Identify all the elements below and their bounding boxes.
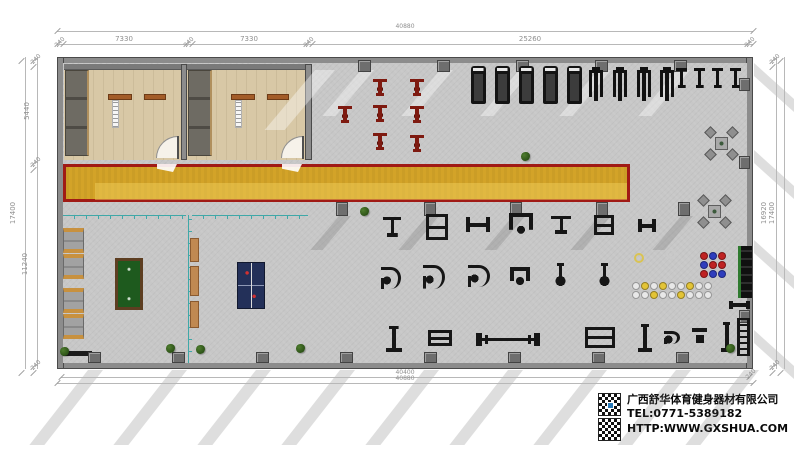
exercise-ball-icon xyxy=(695,291,703,299)
column-bottom xyxy=(508,352,521,363)
exterior-shadow xyxy=(113,370,187,445)
exercise-ball-icon xyxy=(668,282,676,290)
chair-icon xyxy=(692,328,707,346)
ped-icon xyxy=(553,263,568,287)
frame-icon xyxy=(428,330,452,346)
lat-icon xyxy=(383,217,401,237)
bike-icon xyxy=(676,68,687,88)
tower-icon xyxy=(509,213,533,237)
sofa xyxy=(63,254,84,279)
door-leaf xyxy=(177,136,179,159)
sofa xyxy=(63,228,84,253)
spin-icon xyxy=(373,133,387,150)
post-icon xyxy=(638,324,652,352)
dimension-label: 240 xyxy=(29,53,42,66)
treadmill-icon xyxy=(519,66,534,104)
bike-icon xyxy=(730,68,741,88)
sofa xyxy=(63,314,84,339)
sofa xyxy=(63,288,84,313)
bench xyxy=(190,238,199,262)
bench xyxy=(190,266,199,296)
dimension-label: 5440 xyxy=(23,102,31,120)
exterior-shadow xyxy=(449,370,523,445)
ball-ring-icon xyxy=(634,253,644,263)
dimension-label: 25260 xyxy=(519,35,541,43)
treadmill-icon xyxy=(567,66,582,104)
dimension-line xyxy=(57,31,753,32)
exercise-ball-icon xyxy=(650,291,658,299)
elliptical-icon xyxy=(589,67,603,101)
dimension-label: 40880 xyxy=(395,23,414,30)
exercise-ball-icon xyxy=(632,291,640,299)
curl-icon xyxy=(664,331,680,344)
exterior-shadow xyxy=(197,370,271,445)
room-label-strip xyxy=(235,100,242,128)
column-bottom xyxy=(592,352,605,363)
bench-icon xyxy=(729,301,750,309)
locker-cabinet xyxy=(188,70,212,156)
dimension-line xyxy=(776,57,777,369)
column-bottom xyxy=(88,352,101,363)
column-bottom xyxy=(340,352,353,363)
elliptical-icon xyxy=(637,67,651,101)
dimension-label: 40880 xyxy=(395,375,414,382)
wall-bottom xyxy=(57,362,753,369)
dimension-line xyxy=(57,383,753,384)
spin-icon xyxy=(373,105,387,122)
bench-icon xyxy=(466,217,490,232)
table-with-chairs xyxy=(706,128,738,160)
chair-icon xyxy=(719,216,732,229)
column-track xyxy=(678,202,690,216)
gym-floor-plan: 广西舒华体育健身器材有限公司 TEL:0771-5389182 HTTP:WWW… xyxy=(0,0,800,450)
spin-icon xyxy=(373,79,387,96)
medicine-ball-icon xyxy=(700,270,708,278)
chair-icon xyxy=(726,148,739,161)
medicine-ball-icon xyxy=(709,252,717,260)
medicine-ball-icon xyxy=(709,261,717,269)
dimension-label: 17400 xyxy=(768,202,776,224)
dimension-label: 240 xyxy=(29,359,42,372)
curl-icon xyxy=(423,265,445,289)
exercise-ball-icon xyxy=(632,282,640,290)
bike-icon xyxy=(694,68,705,88)
exercise-ball-icon xyxy=(695,282,703,290)
frame-icon xyxy=(594,215,614,235)
qr-code-stack xyxy=(598,393,621,441)
bench-icon xyxy=(638,219,656,232)
chair-icon xyxy=(726,126,739,139)
treadmill-icon xyxy=(471,66,486,104)
barbell-icon xyxy=(476,333,540,346)
exterior-shadow xyxy=(754,150,794,199)
column-top xyxy=(437,60,450,72)
column-track xyxy=(596,202,608,216)
exercise-ball-icon xyxy=(641,282,649,290)
door-leaf xyxy=(302,136,304,159)
treadmill-icon xyxy=(495,66,510,104)
tower-icon xyxy=(510,267,530,287)
exercise-ball-icon xyxy=(677,291,685,299)
medicine-ball-icon xyxy=(709,270,717,278)
chair-icon xyxy=(697,216,710,229)
exercise-ball-icon xyxy=(650,282,658,290)
dimension-label: 240 xyxy=(743,36,756,49)
partition-track-line xyxy=(192,215,308,219)
exercise-ball-icon xyxy=(677,282,685,290)
bench xyxy=(190,301,199,328)
elliptical-icon xyxy=(660,67,674,101)
table-icon xyxy=(708,205,721,218)
qr-logo-icon xyxy=(607,402,614,409)
ped-icon xyxy=(597,263,612,287)
dimension-tick xyxy=(18,58,24,64)
dimension-tick xyxy=(777,370,783,376)
exterior-shadow xyxy=(281,370,355,445)
dimension-label: 240 xyxy=(182,36,195,49)
dimension-label: 11240 xyxy=(21,253,29,275)
qr-code-icon xyxy=(598,418,621,441)
column-right xyxy=(739,156,750,169)
ladder-icon xyxy=(737,318,750,356)
exercise-ball-icon xyxy=(668,291,676,299)
elliptical-icon xyxy=(613,67,627,101)
dimension-tick xyxy=(750,28,756,34)
dimension-label: 7330 xyxy=(240,35,258,43)
column-bottom xyxy=(172,352,185,363)
column-track xyxy=(336,202,348,216)
running-track-lane xyxy=(95,183,627,200)
column-top xyxy=(358,60,371,72)
rackwall-icon xyxy=(738,246,752,298)
bike-icon xyxy=(712,68,723,88)
treadmill-icon xyxy=(543,66,558,104)
exercise-ball-icon xyxy=(686,282,694,290)
medicine-ball-icon xyxy=(718,270,726,278)
spin-icon xyxy=(410,135,424,152)
billiard-table xyxy=(115,258,143,310)
locker-cabinet xyxy=(65,70,89,156)
room-label-strip xyxy=(112,100,119,128)
spin-icon xyxy=(338,106,352,123)
lat-icon xyxy=(551,216,571,234)
exterior-shadow xyxy=(754,63,794,112)
dimension-line xyxy=(784,57,785,369)
curl-icon xyxy=(381,267,401,289)
frame-icon xyxy=(585,327,615,348)
partition-track-line xyxy=(63,215,186,219)
dimension-tick xyxy=(18,370,24,376)
exterior-shadow xyxy=(754,240,794,289)
ball-ring-icon xyxy=(666,249,676,259)
table-icon xyxy=(715,137,728,150)
dimension-label: 7330 xyxy=(115,35,133,43)
exercise-ball-icon xyxy=(704,291,712,299)
dimension-label: 17400 xyxy=(9,202,17,224)
column-bottom xyxy=(256,352,269,363)
dimension-label: 240 xyxy=(302,36,315,49)
curl-icon xyxy=(468,265,490,287)
post-icon xyxy=(386,326,402,352)
room-divider-wall xyxy=(181,64,187,160)
dimension-tick xyxy=(750,380,756,386)
column-bottom xyxy=(676,352,689,363)
frame-icon xyxy=(426,214,448,240)
medicine-ball-icon xyxy=(700,261,708,269)
ping-pong-table xyxy=(237,262,265,309)
ballet-barre xyxy=(144,94,166,100)
dimension-label: 240 xyxy=(29,156,42,169)
qr-code-icon xyxy=(598,393,621,416)
chair-icon xyxy=(719,194,732,207)
spin-icon xyxy=(410,79,424,96)
spin-icon xyxy=(410,106,424,123)
exercise-ball-icon xyxy=(704,282,712,290)
column-bottom xyxy=(424,352,437,363)
medicine-ball-icon xyxy=(718,252,726,260)
dimension-line xyxy=(57,44,753,45)
dimension-label: 16920 xyxy=(760,202,768,224)
exterior-shadow xyxy=(29,370,103,445)
chair-icon xyxy=(704,148,717,161)
medicine-ball-icon xyxy=(718,261,726,269)
exercise-ball-icon xyxy=(686,291,694,299)
table-with-chairs xyxy=(699,196,731,228)
ballet-barre xyxy=(267,94,289,100)
exercise-ball-icon xyxy=(659,291,667,299)
exercise-ball-icon xyxy=(659,282,667,290)
medicine-ball-icon xyxy=(700,252,708,260)
exterior-shadow xyxy=(533,370,607,445)
exercise-ball-icon xyxy=(641,291,649,299)
dimension-line xyxy=(37,57,38,369)
dimension-label: 240 xyxy=(53,36,66,49)
